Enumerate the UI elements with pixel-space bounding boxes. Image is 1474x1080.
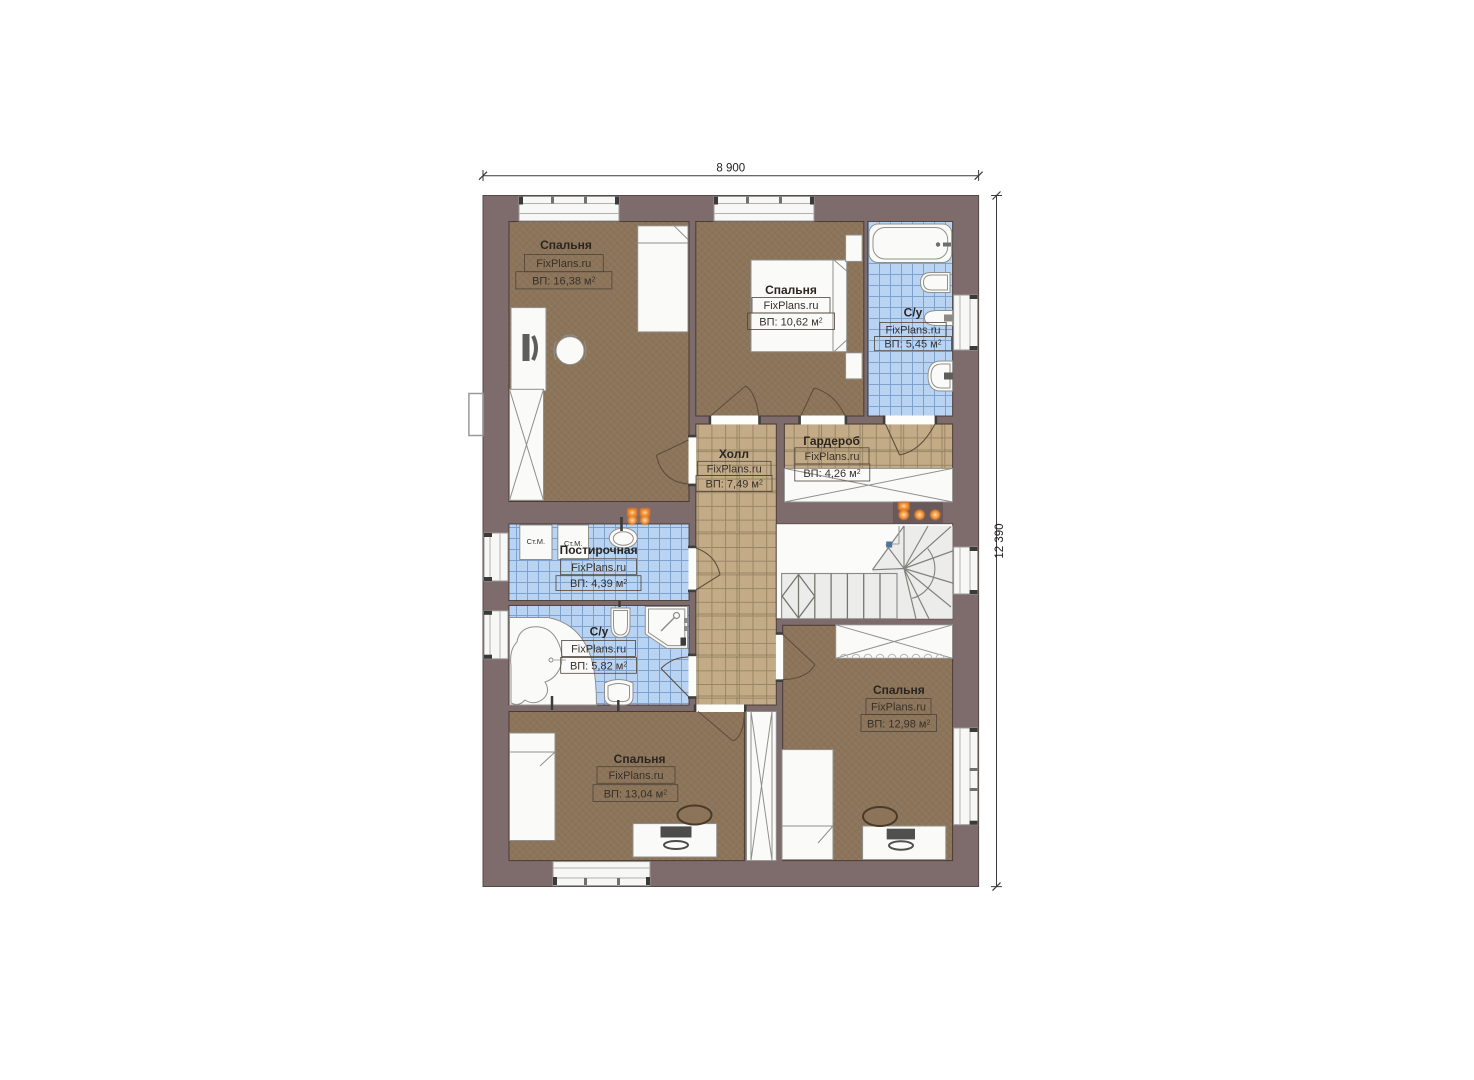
svg-text:FixPlans.ru: FixPlans.ru — [571, 562, 626, 574]
svg-text:12 390: 12 390 — [994, 523, 1006, 558]
svg-text:Спальня: Спальня — [614, 752, 666, 766]
svg-text:FixPlans.ru: FixPlans.ru — [608, 770, 663, 782]
svg-text:С/у: С/у — [590, 625, 609, 639]
svg-text:Спальня: Спальня — [540, 238, 592, 252]
svg-text:FixPlans.ru: FixPlans.ru — [536, 258, 591, 270]
svg-text:FixPlans.ru: FixPlans.ru — [885, 324, 940, 336]
svg-text:Спальня: Спальня — [765, 283, 817, 297]
svg-text:ВП: 5,82 м2: ВП: 5,82 м2 — [570, 660, 627, 672]
svg-text:ВП: 12,98 м2: ВП: 12,98 м2 — [867, 718, 931, 730]
svg-text:FixPlans.ru: FixPlans.ru — [571, 643, 626, 655]
svg-text:Ст.М.: Ст.М. — [564, 539, 582, 548]
svg-text:FixPlans.ru: FixPlans.ru — [763, 300, 818, 312]
svg-text:FixPlans.ru: FixPlans.ru — [804, 451, 859, 463]
svg-text:ВП: 16,38 м2: ВП: 16,38 м2 — [532, 276, 596, 288]
svg-text:FixPlans.ru: FixPlans.ru — [707, 463, 762, 475]
svg-text:ВП: 5,45 м2: ВП: 5,45 м2 — [884, 339, 941, 351]
svg-text:FixPlans.ru: FixPlans.ru — [871, 702, 926, 714]
svg-text:Ст.М.: Ст.М. — [527, 537, 545, 546]
svg-text:Гардероб: Гардероб — [803, 434, 860, 448]
svg-text:Холл: Холл — [719, 447, 749, 461]
svg-text:ВП: 4,39 м2: ВП: 4,39 м2 — [570, 578, 627, 590]
svg-text:ВП: 13,04 м2: ВП: 13,04 м2 — [604, 788, 668, 800]
svg-text:Спальня: Спальня — [873, 683, 925, 697]
svg-text:С/у: С/у — [904, 306, 923, 320]
svg-text:ВП: 10,62 м2: ВП: 10,62 м2 — [759, 317, 823, 329]
svg-text:ВП: 4,26 м2: ВП: 4,26 м2 — [803, 468, 860, 480]
svg-text:ВП: 7,49 м2: ВП: 7,49 м2 — [706, 479, 763, 491]
svg-text:8 900: 8 900 — [716, 163, 745, 175]
